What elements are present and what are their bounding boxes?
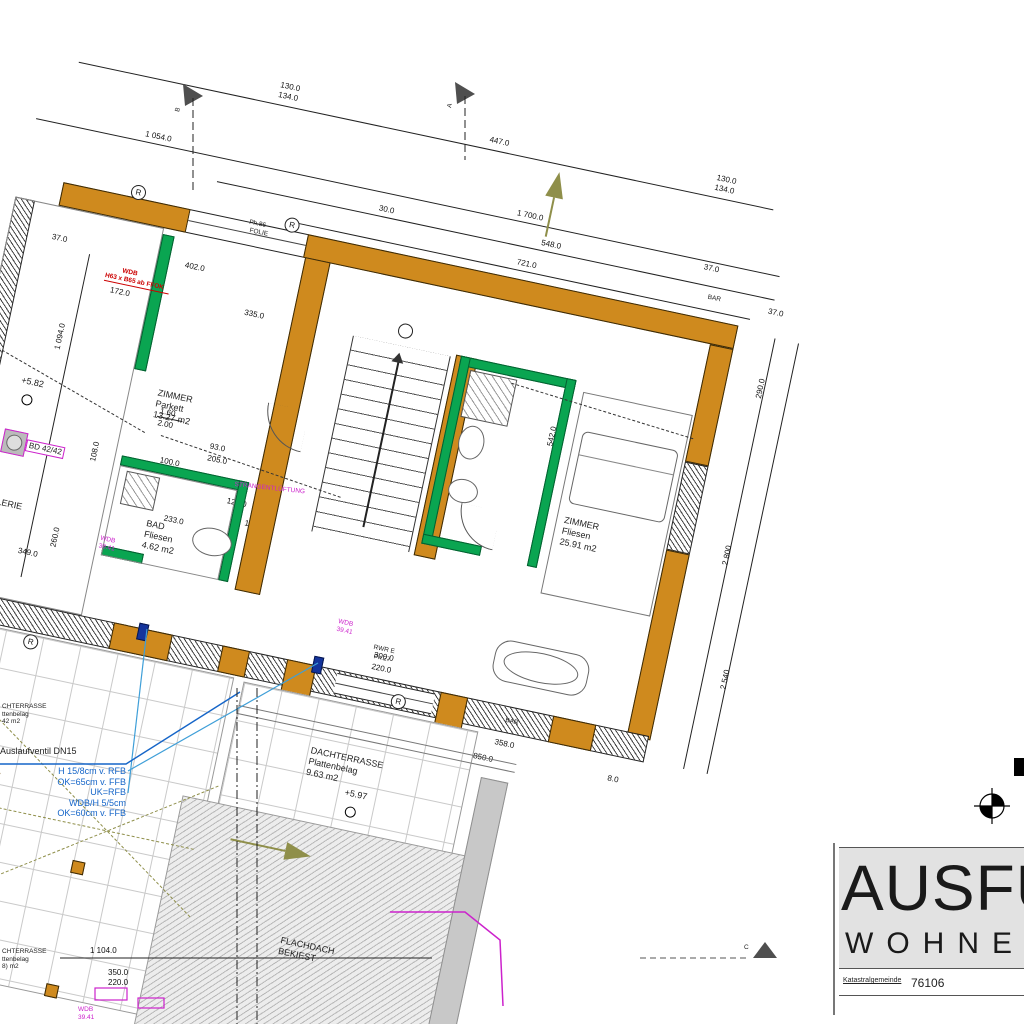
title-block: AUSFÜH WOHNEN Katastralgemeinde 76106 [833, 843, 1024, 1015]
registration-mark-icon [974, 788, 1010, 824]
room-name: CHTERRASSE [2, 948, 46, 956]
wdb-magenta: WDB [78, 1006, 93, 1014]
room-finish: ttenbelag [2, 956, 46, 964]
room-area: 42 m2 [2, 718, 46, 726]
wdb-magenta-val: 39.41 [78, 1014, 94, 1022]
title-block-subtitle: WOHNEN [845, 927, 1024, 961]
section-label-c: C [744, 944, 749, 952]
title-block-border [833, 843, 835, 1015]
blue-note: H 15/8cm v. RFB [0, 766, 126, 777]
room-area: 8) m2 [2, 963, 46, 971]
room-finish: ttenbelag [2, 711, 46, 719]
title-block-title: AUSFÜH [841, 851, 1024, 925]
blue-note: OK=65cm v. FFB [0, 777, 126, 788]
leader-line [128, 629, 147, 793]
dim-label: 220.0 [108, 978, 128, 987]
room-label-terrace-left: CHTERRASSE ttenbelag 42 m2 [2, 703, 46, 726]
floor-plan-sheet: 130.0 134.0 447.0 130.0 134.0 1 054.0 1 … [0, 0, 1024, 1024]
section-marker-c-icon [753, 942, 777, 958]
plumbing-fitting [138, 998, 164, 1008]
room-name: CHTERRASSE [2, 703, 46, 711]
auslaufventil-label: Auslaufventil DN15 [0, 748, 77, 756]
field-label: Katastralgemeinde [843, 977, 901, 984]
blue-annotation-block: H 15/8cm v. RFB OK=65cm v. FFB UK=RFB WD… [0, 766, 126, 819]
room-label-terrace-bottom: CHTERRASSE ttenbelag 8) m2 [2, 948, 46, 971]
blue-note: UK=RFB [0, 787, 126, 798]
field-value: 76106 [911, 976, 944, 990]
plumbing-line [390, 912, 503, 1006]
title-block-field: Katastralgemeinde 76106 [839, 973, 1024, 996]
dim-label: 1 104.0 [90, 946, 117, 955]
leader-line [128, 663, 318, 771]
edge-mark [1014, 758, 1024, 776]
dim-label: 350.0 [108, 968, 128, 977]
plumbing-fitting [95, 988, 127, 1000]
blue-note: WDB/H 5/5cm [0, 798, 126, 809]
blue-note: OK=60cm v. FFB [0, 808, 126, 819]
